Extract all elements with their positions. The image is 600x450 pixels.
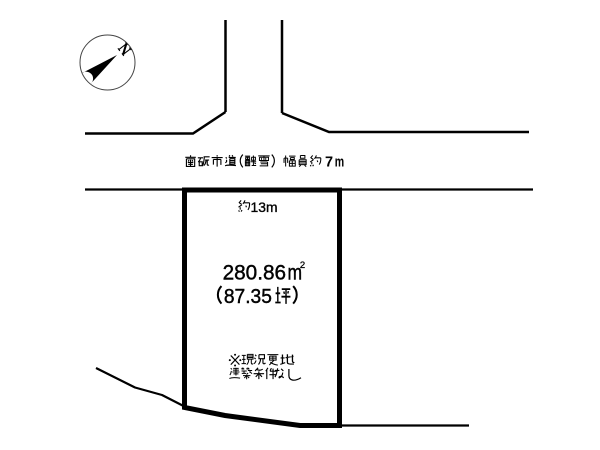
svg-text:87.35: 87.35 bbox=[224, 286, 272, 308]
svg-text:m: m bbox=[335, 155, 344, 171]
svg-text:280.86: 280.86 bbox=[223, 261, 287, 285]
svg-text:13m: 13m bbox=[251, 199, 278, 215]
svg-text:7: 7 bbox=[325, 155, 333, 171]
svg-text:2: 2 bbox=[300, 260, 305, 271]
